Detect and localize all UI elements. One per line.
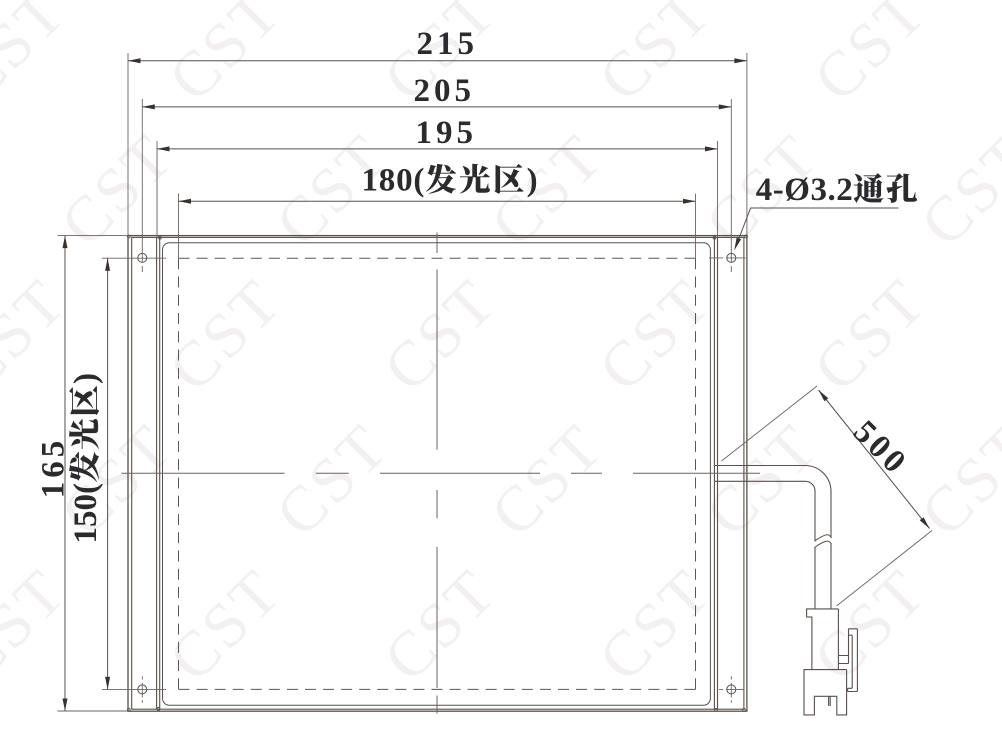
svg-text:180(: 180( [362, 163, 426, 199]
svg-text:CST: CST [692, 410, 832, 550]
svg-text:CST: CST [585, 265, 725, 405]
svg-text:CST: CST [155, 0, 295, 115]
svg-text:CST: CST [585, 555, 725, 695]
svg-text:CST: CST [907, 410, 1002, 550]
svg-text:): ) [68, 373, 104, 384]
svg-text:CST: CST [47, 120, 187, 260]
svg-text:): ) [527, 163, 538, 199]
svg-text:CST: CST [800, 265, 940, 405]
svg-text:CST: CST [0, 0, 80, 115]
svg-text:205: 205 [413, 73, 475, 109]
svg-text:215: 215 [416, 26, 478, 62]
svg-text:CST: CST [370, 265, 510, 405]
svg-text:CST: CST [907, 120, 1002, 260]
svg-text:4-Ø3.2: 4-Ø3.2 [756, 172, 853, 208]
svg-text:CST: CST [0, 555, 80, 695]
svg-text:165: 165 [36, 437, 72, 499]
svg-text:CST: CST [800, 0, 940, 115]
svg-text:500: 500 [846, 414, 915, 483]
svg-text:CST: CST [370, 555, 510, 695]
svg-text:CST: CST [155, 265, 295, 405]
svg-text:CST: CST [155, 555, 295, 695]
svg-text:CST: CST [262, 410, 402, 550]
svg-text:CST: CST [800, 555, 940, 695]
svg-text:195: 195 [416, 115, 478, 151]
svg-text:CST: CST [585, 0, 725, 115]
svg-text:150(: 150( [68, 483, 104, 544]
svg-text:CST: CST [477, 410, 617, 550]
